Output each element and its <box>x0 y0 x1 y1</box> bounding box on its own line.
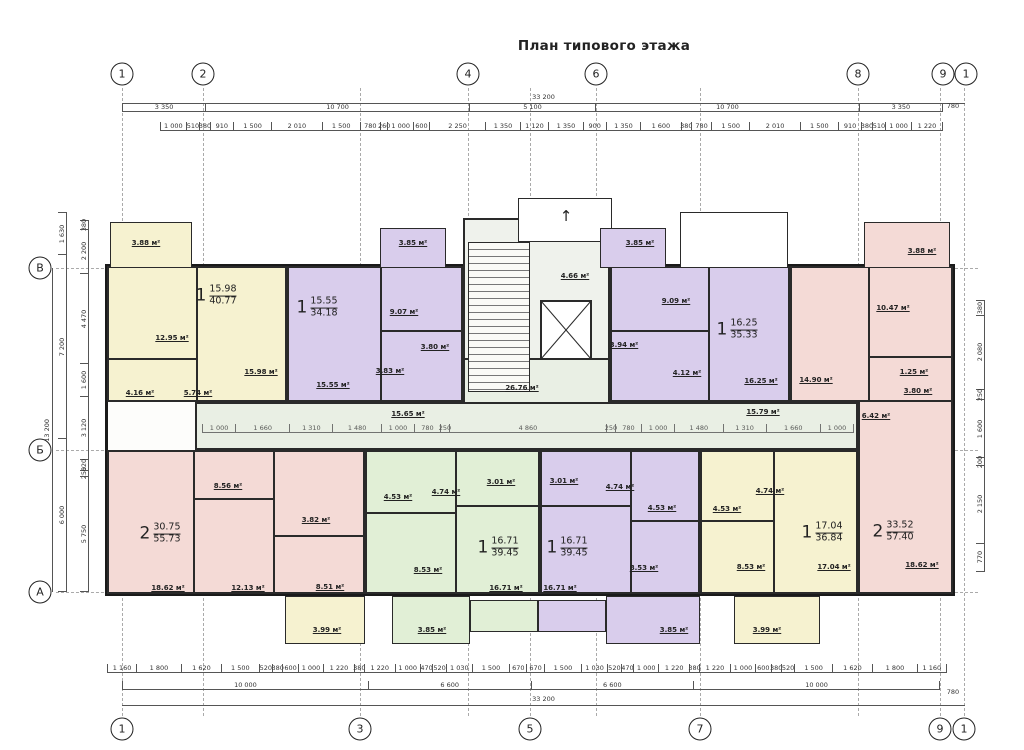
dim-segment: 380 <box>689 664 699 672</box>
dim-segment: 10 700 <box>595 103 859 111</box>
dim-segment: 260 <box>380 122 387 130</box>
partition-wall <box>455 450 457 594</box>
corridor-area-label: 26.76 м² <box>505 384 538 392</box>
dim-segment: 380 <box>80 220 88 229</box>
dim-segment: 520 <box>259 664 273 672</box>
room-area-label: 16.71 м² <box>489 584 522 592</box>
room-area-label: 12.95 м² <box>155 334 188 342</box>
dim-segment: 1 600 <box>80 363 88 396</box>
dim-segment: 6 600 <box>368 681 531 689</box>
room-area-label: 18.62 м² <box>905 561 938 569</box>
dim-segment: 600 <box>282 664 298 672</box>
dim-bottom-spans: 10 0006 6006 60010 000 <box>122 681 940 690</box>
dim-segment: 1 660 <box>766 424 820 432</box>
balcony-proj-green <box>470 600 538 632</box>
dim-segment: 2 010 <box>271 122 322 130</box>
partition-wall <box>273 450 275 594</box>
partition-wall <box>455 505 540 507</box>
dim-segment: 2 080 <box>976 315 984 390</box>
partition-wall <box>868 268 870 402</box>
balcony-b1 <box>285 596 365 644</box>
room-area-label: 4.53 м² <box>713 505 742 513</box>
dim-segment: 1 600 <box>640 122 680 130</box>
apartment-a4-label: 2 33.5257.40 <box>872 521 913 544</box>
balcony-area-label: 3.88 м² <box>132 239 161 247</box>
grid-marker-left: В <box>29 257 52 280</box>
partition-wall <box>773 450 775 594</box>
grid-marker-top: 8 <box>847 63 870 86</box>
dim-segment: 380 <box>861 122 871 130</box>
dim-segment: 1 160 <box>107 664 136 672</box>
balcony-a2 <box>380 228 446 268</box>
entrance-arrow-icon: ↑ <box>560 207 573 225</box>
room-area-label: 16.71 м² <box>543 584 576 592</box>
dim-segment: 1 500 <box>544 664 581 672</box>
elevator-shaft <box>540 300 592 360</box>
room-area-label: 8.56 м² <box>214 482 243 490</box>
room-area-label: 8.53 м² <box>737 563 766 571</box>
dim-segment: 5 100 <box>469 103 595 111</box>
partition-wall <box>540 505 630 507</box>
dim-segment: 1 800 <box>872 664 917 672</box>
dim-segment: 2 200 <box>80 229 88 274</box>
room-area-label: 15.55 м² <box>316 381 349 389</box>
balcony-area-label: 3.99 м² <box>753 626 782 634</box>
dim-segment: 1 630 <box>58 212 66 254</box>
dim-segment: 380 <box>681 122 691 130</box>
dim-segment: 2 250 <box>429 122 486 130</box>
balcony-a4 <box>864 222 950 268</box>
dim-segment: 1 500 <box>472 664 509 672</box>
dim-segment: 520 <box>781 664 795 672</box>
dim-segment: 1 220 <box>699 664 730 672</box>
dim-segment: 600 <box>413 122 429 130</box>
dim-top-chain: 1 0005103809101 5002 0101 5007802601 000… <box>160 122 943 131</box>
room-area-label: 5.74 м² <box>184 389 213 397</box>
dim-segment: 1 620 <box>832 664 872 672</box>
balcony-area-label: 3.88 м² <box>908 247 937 255</box>
grid-marker-top: 6 <box>585 63 608 86</box>
dim-segment: 1 350 <box>548 122 582 130</box>
partition-wall <box>700 520 773 522</box>
room-area-label: 8.51 м² <box>316 583 345 591</box>
partition-wall <box>107 358 196 360</box>
room-area-label: 3.80 м² <box>421 343 450 351</box>
dim-segment: 1 500 <box>794 664 831 672</box>
grid-marker-bottom: 1 <box>111 718 134 741</box>
dim-segment: 1 120 <box>520 122 549 130</box>
dim-segment: 380 <box>976 300 984 315</box>
dim-segment: 1 500 <box>711 122 749 130</box>
dim-segment: 780 <box>615 424 641 432</box>
dim-segment: 1 660 <box>235 424 289 432</box>
room-area-label: 8.53 м² <box>414 566 443 574</box>
dim-segment: 910 <box>210 122 233 130</box>
room-area-label: 3.80 м² <box>904 387 933 395</box>
room-area-label: 8.53 м² <box>630 564 659 572</box>
room-area-label: 18.62 м² <box>151 584 184 592</box>
dim-segment: 900 <box>583 122 606 130</box>
partition-wall <box>610 330 708 332</box>
plan-title: План типового этажа <box>518 38 690 54</box>
apartment-b4-label: 1 17.0436.84 <box>801 522 842 545</box>
dim-segment: 1 220 <box>658 664 689 672</box>
dim-segment: 780 <box>691 122 711 130</box>
grid-marker-top: 1 <box>111 63 134 86</box>
grid-marker-left: Б <box>29 439 52 462</box>
dim-right-detail: 3802 0802501 6002002 150770 <box>976 300 985 572</box>
dim-segment: 380 <box>272 664 282 672</box>
floor-plan: План типового этажа 1 2 4 6 8 9 1 1 3 5 … <box>0 0 1024 750</box>
room-area-label: 4.16 м² <box>126 389 155 397</box>
room-area-label: 3.01 м² <box>487 478 516 486</box>
dim-segment: 10 000 <box>693 681 940 689</box>
staircase <box>468 242 530 392</box>
grid-marker-bottom: 3 <box>349 718 372 741</box>
room-area-label: 4.53 м² <box>384 493 413 501</box>
grid-marker-top: 1 <box>955 63 978 86</box>
dim-segment: 510 <box>872 122 886 130</box>
dim-segment: 1 310 <box>723 424 766 432</box>
apartment-a2-label: 1 15.5534.18 <box>296 297 337 320</box>
dim-segment: 1 220 <box>911 122 943 130</box>
dim-segment: 1 000 <box>202 424 235 432</box>
apartment-b2-area <box>365 450 540 594</box>
dim-segment: 670 <box>509 664 526 672</box>
partition-wall <box>868 356 953 358</box>
dim-segment: 3 120 <box>80 396 88 459</box>
dim-segment: 780 <box>414 424 440 432</box>
dim-segment: 1 000 <box>298 664 323 672</box>
dim-segment: 1 620 <box>181 664 221 672</box>
dim-segment: 1 220 <box>323 664 354 672</box>
dim-segment: 1 000 <box>387 122 413 130</box>
partition-wall <box>380 330 463 332</box>
balcony-proj-purple <box>538 600 606 632</box>
dim-segment: 250 <box>606 424 615 432</box>
room-area-label: 4.74 м² <box>606 483 635 491</box>
dim-segment: 3 350 <box>122 103 205 111</box>
dim-segment: 4 860 <box>449 424 606 432</box>
dim-segment: 2 150 <box>976 465 984 542</box>
apartment-a2-area <box>287 266 463 402</box>
balcony-area-label: 3.85 м² <box>399 239 428 247</box>
grid-marker-bottom: 1 <box>953 718 976 741</box>
partition-wall <box>380 268 382 402</box>
dim-segment: 670 <box>526 664 543 672</box>
apartment-b3-area <box>540 450 700 594</box>
balcony-area-label: 3.85 м² <box>418 626 447 634</box>
dim-segment: 1 480 <box>332 424 380 432</box>
room-area-label: 10.47 м² <box>876 304 909 312</box>
balcony-b4 <box>734 596 820 644</box>
dim-segment: 1 600 <box>976 399 984 457</box>
dim-segment: 10 000 <box>122 681 368 689</box>
dim-bottom-overall: 33 200 <box>122 697 965 706</box>
dim-segment: 1 000 <box>641 424 674 432</box>
partition-wall <box>365 512 455 514</box>
dim-segment: 520 <box>607 664 621 672</box>
room-area-label: 1.25 м² <box>900 368 929 376</box>
dim-segment: 4 470 <box>80 273 88 363</box>
dim-left-spans: 1 6307 2006 000 <box>58 212 67 592</box>
dim-segment: 1 800 <box>136 664 181 672</box>
dim-segment: 770 <box>976 543 984 572</box>
dim-segment: 1 500 <box>322 122 360 130</box>
dim-bottom-offset: 780 <box>947 688 959 696</box>
dim-segment: 600 <box>755 664 771 672</box>
dim-segment: 1 000 <box>633 664 658 672</box>
balcony-b2 <box>392 596 470 644</box>
apartment-b1-label: 2 30.7555.73 <box>139 523 180 546</box>
dim-segment: 2 010 <box>749 122 800 130</box>
room-area-label: 12.13 м² <box>231 584 264 592</box>
dim-segment: 1 000 <box>820 424 854 432</box>
dim-segment: 1 500 <box>221 664 258 672</box>
apartment-b2-label: 1 16.7139.45 <box>477 537 518 560</box>
room-area-label: 3.82 м² <box>302 516 331 524</box>
grid-marker-left: А <box>29 581 52 604</box>
room-area-label: 9.07 м² <box>390 308 419 316</box>
dim-segment: 200 <box>976 457 984 465</box>
partition-wall <box>708 268 710 402</box>
dim-segment: 1 000 <box>730 664 755 672</box>
dim-segment: 380 <box>199 122 209 130</box>
grid-marker-bottom: 7 <box>689 718 712 741</box>
dim-segment: 1 000 <box>381 424 414 432</box>
balcony-area-label: 3.85 м² <box>626 239 655 247</box>
apartment-a1-label: 1 15.9840.77 <box>195 285 236 308</box>
room-area-label: 3.83 м² <box>376 367 405 375</box>
dim-left-detail: 3802 2004 4701 6003 1205202505 750 <box>80 220 89 592</box>
dim-segment: 380 <box>771 664 781 672</box>
dim-segment: 470 <box>621 664 633 672</box>
balcony-a3 <box>600 228 666 268</box>
dim-segment: 380 <box>354 664 364 672</box>
dim-segment: 250 <box>976 389 984 399</box>
dim-segment: 780 <box>360 122 380 130</box>
dim-segment: 10 700 <box>205 103 469 111</box>
dim-bottom-chain: 1 1601 8001 6201 5005203806001 0001 2203… <box>107 664 947 673</box>
room-area-label: 4.74 м² <box>756 487 785 495</box>
room-area-label: 3.94 м² <box>610 341 639 349</box>
dim-segment: 7 200 <box>58 254 66 438</box>
room-area-label: 17.04 м² <box>817 563 850 571</box>
partition-wall <box>193 498 273 500</box>
dim-segment: 3 350 <box>859 103 943 111</box>
balcony-b3 <box>606 596 700 644</box>
room-area-label: 4.12 м² <box>673 369 702 377</box>
room-area-label: 6.42 м² <box>862 412 891 420</box>
grid-marker-top: 2 <box>192 63 215 86</box>
dim-segment: 1 000 <box>395 664 420 672</box>
dim-segment: 510 <box>186 122 200 130</box>
dim-segment: 1 500 <box>233 122 271 130</box>
dim-segment: 1 220 <box>364 664 395 672</box>
dim-segment: 1 480 <box>674 424 722 432</box>
dim-segment: 1 310 <box>289 424 332 432</box>
dim-segment: 1 500 <box>800 122 838 130</box>
dim-segment: 1 030 <box>581 664 607 672</box>
dim-top-offset: 780 <box>947 102 959 110</box>
dim-corridor-chain: 1 0001 6601 3101 4801 0007802504 8602507… <box>202 424 854 433</box>
dim-segment: 6 600 <box>531 681 694 689</box>
apartment-a3-label: 1 16.2535.33 <box>716 319 757 342</box>
grid-marker-bottom: 5 <box>519 718 542 741</box>
dim-segment: 1 000 <box>885 122 911 130</box>
room-area-label: 4.53 м² <box>648 504 677 512</box>
room-area-label: 9.09 м² <box>662 297 691 305</box>
lobby-area-label: 4.66 м² <box>561 272 590 280</box>
room-area-label: 15.98 м² <box>244 368 277 376</box>
dim-segment: 1 030 <box>446 664 472 672</box>
dim-segment: 1 350 <box>606 122 640 130</box>
partition-wall <box>630 450 632 594</box>
partition-wall <box>193 450 195 594</box>
balcony-area-label: 3.85 м² <box>660 626 689 634</box>
dim-segment: 1 000 <box>160 122 186 130</box>
apartment-b3-label: 1 16.7139.45 <box>546 537 587 560</box>
balcony-area-label: 3.99 м² <box>313 626 342 634</box>
grid-marker-bottom: 9 <box>929 718 952 741</box>
dim-left-overall: 13 200 <box>42 268 53 592</box>
grid-marker-top: 4 <box>457 63 480 86</box>
dim-segment: 1 350 <box>485 122 519 130</box>
dim-segment: 6 000 <box>58 438 66 592</box>
room-area-label: 3.01 м² <box>550 477 579 485</box>
axis-line <box>964 88 965 716</box>
partition-wall <box>630 520 700 522</box>
corridor-area-label: 15.65 м² <box>391 410 424 418</box>
dim-segment: 1 160 <box>917 664 947 672</box>
grid-marker-top: 9 <box>932 63 955 86</box>
room-area-label: 4.74 м² <box>432 488 461 496</box>
dim-segment: 5 750 <box>80 476 88 592</box>
dim-segment: 470 <box>420 664 432 672</box>
room-area-label: 14.90 м² <box>799 376 832 384</box>
balcony-top-white <box>680 212 788 268</box>
partition-wall <box>273 535 365 537</box>
dim-segment: 250 <box>440 424 449 432</box>
room-area-label: 16.25 м² <box>744 377 777 385</box>
corridor-area-label: 15.79 м² <box>746 408 779 416</box>
dim-segment: 910 <box>838 122 861 130</box>
dim-top-spans: 3 35010 7005 10010 7003 350 <box>122 103 943 112</box>
dim-segment: 520 <box>432 664 446 672</box>
